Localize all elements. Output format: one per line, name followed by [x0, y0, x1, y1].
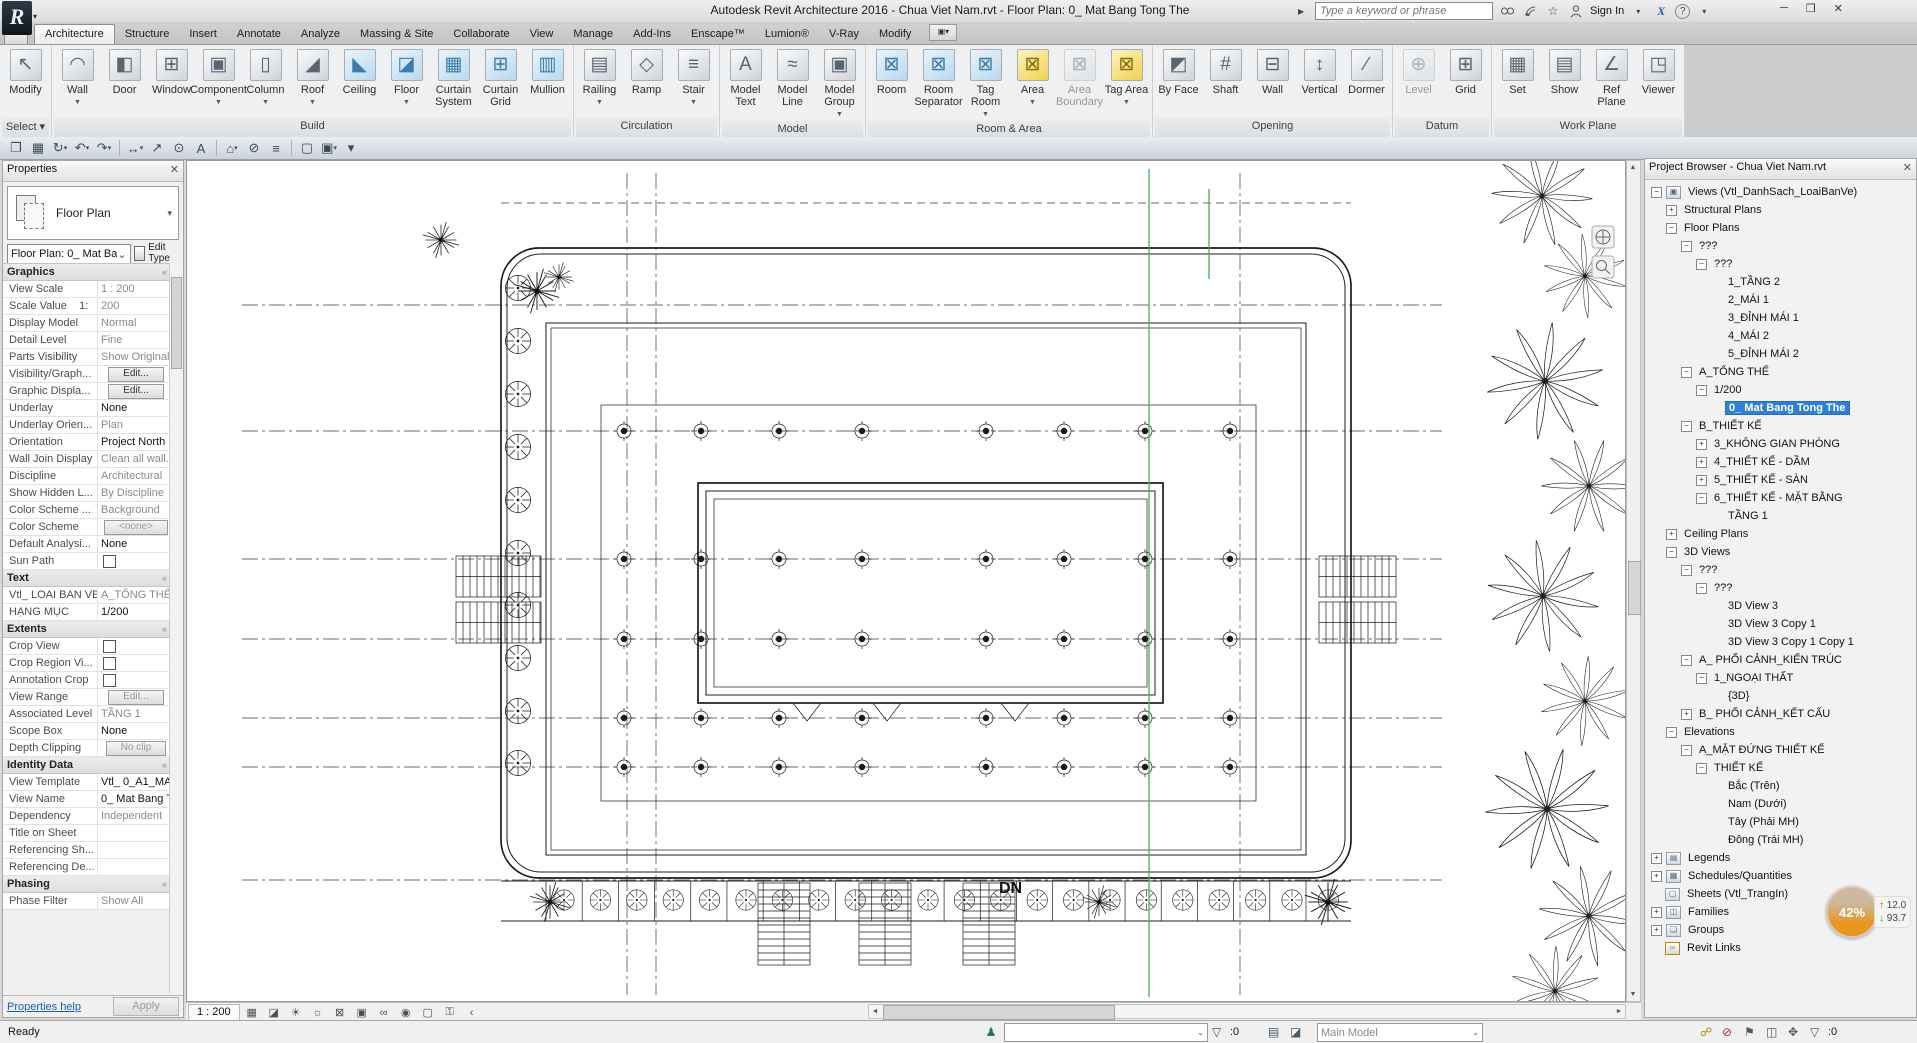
area-icon: ⊠	[1017, 49, 1049, 81]
collapse-icon[interactable]: −	[1681, 565, 1692, 576]
apply-button[interactable]: Apply	[113, 997, 179, 1016]
expand-icon[interactable]: +	[1651, 871, 1662, 882]
zoom-tool-icon[interactable]	[1592, 256, 1614, 278]
ribbon-group-label-select[interactable]: Select ▾	[2, 118, 49, 137]
restore-button[interactable]: ❐	[1806, 2, 1816, 22]
ribbon-button-room-separator[interactable]: ⊠Room Separator	[915, 46, 962, 117]
open-icon[interactable]: ❐	[6, 139, 26, 157]
select-links-icon[interactable]: ☍	[1700, 1025, 1718, 1039]
browser-item-thi-t-k[interactable]: −THIẾT KẾ	[1645, 759, 1916, 777]
ribbon-button-stair[interactable]: ≡Stair▼	[670, 46, 717, 117]
browser-item-label[interactable]: 5_ĐỈNH MÁI 2	[1725, 348, 1802, 360]
browser-item-5-thi-t-k-s-n[interactable]: +5_THIẾT KẾ - SÀN	[1645, 471, 1916, 489]
browser-item-label[interactable]: 1_TẦNG 2	[1725, 276, 1783, 288]
save-icon[interactable]: ▦	[28, 139, 48, 157]
tab-v-ray[interactable]: V-Ray	[819, 25, 869, 44]
browser-item-label[interactable]: 0_ Mat Bang Tong The	[1725, 401, 1850, 415]
dropdown-arrow-icon[interactable]: ▼	[596, 97, 603, 109]
application-menu-arrow-icon[interactable]: ▾	[33, 12, 37, 21]
undo-icon[interactable]: ↶ ▾	[72, 139, 92, 157]
ribbon-button-column[interactable]: ▯Column▼	[242, 46, 289, 117]
dropdown-arrow-icon[interactable]: ▼	[1029, 97, 1036, 109]
property-value[interactable]: 1/200	[101, 604, 129, 620]
browser-item-[interactable]: −???	[1645, 255, 1916, 273]
browser-item-b-ph-i-c-nh-k-t-c-u[interactable]: +B_ PHỐI CẢNH_KẾT CẤU	[1645, 705, 1916, 723]
browser-item-4-thi-t-k-d-m[interactable]: +4_THIẾT KẾ - DẦM	[1645, 453, 1916, 471]
drawing-area[interactable]: DN	[186, 160, 1626, 1002]
download-arrow-icon: ↓	[1879, 913, 1884, 924]
ribbon-button-area[interactable]: ⊠Area▼	[1009, 46, 1056, 117]
reveal-hidden-elements-icon[interactable]: ∞	[374, 1004, 394, 1021]
property-edit-button[interactable]: Edit...	[108, 367, 164, 382]
user-icon	[1567, 3, 1585, 19]
thin-lines-icon[interactable]: ≡	[266, 139, 286, 157]
trees[interactable]	[423, 222, 1351, 925]
collapse-icon[interactable]: −	[1696, 583, 1707, 594]
browser-item-elevations[interactable]: −Elevations	[1645, 723, 1916, 741]
collapse-icon[interactable]: −	[1696, 673, 1707, 684]
collapse-icon[interactable]: −	[1681, 745, 1692, 756]
show-icon: ▤	[1549, 49, 1581, 81]
browser-item-label[interactable]: 3D View 3 Copy 1	[1725, 618, 1819, 630]
ribbon-button-ramp[interactable]: ◇Ramp	[623, 46, 670, 117]
column-grid[interactable]	[614, 421, 1240, 777]
collapse-icon[interactable]: −	[1696, 259, 1707, 270]
browser-item-label[interactable]: Structural Plans	[1681, 204, 1765, 216]
tab-enscape[interactable]: Enscape™	[681, 25, 755, 44]
collapse-icon[interactable]: −	[1681, 655, 1692, 666]
design-option-select[interactable]: Main Model⌄	[1317, 1023, 1483, 1042]
property-checkbox[interactable]	[103, 657, 116, 670]
column-icon: ▯	[250, 49, 282, 81]
browser-item-label[interactable]: Groups	[1685, 924, 1727, 936]
ribbon-button-roof[interactable]: ◢Roof▼	[289, 46, 336, 117]
collapse-icon[interactable]: ‹	[462, 1004, 482, 1021]
show-crop-region-icon[interactable]: ▣	[352, 1004, 372, 1021]
selector-arrow-icon[interactable]: ⌄	[117, 248, 126, 261]
collapse-icon[interactable]: −	[1696, 385, 1707, 396]
browser-item-label[interactable]: 4_THIẾT KẾ - DẦM	[1711, 456, 1813, 468]
property-checkbox[interactable]	[103, 555, 116, 568]
infocenter: ▸ ☆ Sign In ▾ X ? ▾	[1292, 1, 1713, 21]
browser-item-label[interactable]: Ceiling Plans	[1681, 528, 1751, 540]
collapse-icon[interactable]: −	[1696, 493, 1707, 504]
section-header-phasing[interactable]: Phasing«	[3, 876, 171, 893]
ribbon-button-curtain-system[interactable]: ▦Curtain System	[430, 46, 477, 117]
browser-item-t-ng-1[interactable]: TẦNG 1	[1645, 507, 1916, 525]
dropdown-arrow-icon[interactable]: ▼	[262, 97, 269, 109]
minimize-button[interactable]: ─	[1780, 2, 1788, 22]
ribbon-button-door[interactable]: ◧Door	[101, 46, 148, 117]
sun-path-off-icon[interactable]: ☀	[286, 1004, 306, 1021]
area-boundary-icon: ⊠	[1064, 49, 1096, 81]
visual-style-icon[interactable]: ▦	[242, 1004, 262, 1021]
search-icon[interactable]	[1498, 3, 1516, 19]
sign-in-button[interactable]: Sign In	[1590, 5, 1624, 17]
dropdown-arrow-icon[interactable]: ▼	[982, 109, 989, 121]
browser-item-floor-plans[interactable]: −Floor Plans	[1645, 219, 1916, 237]
browser-item-b-c-tr-n[interactable]: Bắc (Trên)	[1645, 777, 1916, 795]
browser-item-label[interactable]: A_TỔNG THỂ	[1696, 366, 1772, 378]
browser-item-label[interactable]: Revit Links	[1684, 942, 1744, 954]
browser-item-label[interactable]: 1/200	[1711, 384, 1745, 396]
ribbon-button-show[interactable]: ▤Show	[1541, 46, 1588, 117]
ribbon-button-set[interactable]: ▦Set	[1494, 46, 1541, 117]
ribbon-button-room[interactable]: ⊠Room	[868, 46, 915, 117]
tab-view[interactable]: View	[520, 25, 564, 44]
selection-toggles: ☍⊘⚑◫✥▽	[1700, 1023, 1828, 1040]
browser-item-t-y-ph-i-mh[interactable]: Tây (Phải MH)	[1645, 813, 1916, 831]
browser-item-ng-tr-i-mh[interactable]: Đông (Trái MH)	[1645, 831, 1916, 849]
browser-item-3d-view-3-copy-1[interactable]: 3D View 3 Copy 1	[1645, 615, 1916, 633]
property-row-annotation-crop: Annotation Crop	[3, 672, 171, 689]
browser-item-1-200[interactable]: −1/200	[1645, 381, 1916, 399]
property-value[interactable]: 0_ Mat Bang To...	[101, 791, 171, 807]
horizontal-scrollbar[interactable]: ◄ ►	[868, 1004, 1626, 1019]
expand-icon[interactable]: +	[1666, 529, 1677, 540]
collapse-icon[interactable]: −	[1666, 547, 1677, 558]
speed-percent-badge[interactable]: 42%	[1826, 886, 1878, 938]
collapse-icon[interactable]: −	[1681, 241, 1692, 252]
browser-item-b-thi-t-k[interactable]: −B_THIẾT KẾ	[1645, 417, 1916, 435]
property-value[interactable]: Project North	[101, 434, 165, 450]
ribbon-button-grid[interactable]: ⊞Grid	[1442, 46, 1489, 117]
expand-icon[interactable]: +	[1651, 925, 1662, 936]
select-by-face-icon[interactable]: ◫	[1766, 1025, 1784, 1039]
browser-item-a-m-t-ng-thi-t-k[interactable]: −A_MẶT ĐỨNG THIẾT KẾ	[1645, 741, 1916, 759]
property-value[interactable]: Vtl_ 0_A1_MAT BA	[101, 774, 171, 790]
properties-palette: Properties ✕ Floor Plan ▾ Floor Plan: 0_…	[2, 160, 184, 1018]
browser-item-label[interactable]: 2_MÁI 1	[1725, 294, 1772, 306]
scroll-left-icon[interactable]: ◄	[869, 1005, 881, 1018]
property-value[interactable]: None	[101, 723, 127, 739]
ribbon-button-floor[interactable]: ◪Floor▼	[383, 46, 430, 117]
select-pinned-icon[interactable]: ⚑	[1744, 1025, 1762, 1039]
project-browser-close-icon[interactable]: ✕	[1903, 161, 1912, 179]
horizontal-scroll-thumb[interactable]	[883, 1005, 1115, 1020]
palm-plants[interactable]	[1475, 161, 1625, 1001]
section-icon[interactable]: ⊘	[244, 139, 264, 157]
browser-item-label[interactable]: 1_NGOẠI THẤT	[1711, 672, 1796, 684]
property-edit-button[interactable]: Edit...	[108, 690, 164, 705]
property-row-sun-path: Sun Path	[3, 553, 171, 570]
property-value[interactable]: None	[101, 400, 127, 416]
ribbon-button-viewer[interactable]: ◳Viewer	[1635, 46, 1682, 117]
section-header-identity-data[interactable]: Identity Data«	[3, 757, 171, 774]
ribbon-button-curtain-grid[interactable]: ⊞Curtain Grid	[477, 46, 524, 117]
browser-item-3d-view-3-copy-1-copy-1[interactable]: 3D View 3 Copy 1 Copy 1	[1645, 633, 1916, 651]
property-edit-button[interactable]: Edit...	[108, 384, 164, 399]
browser-item-label[interactable]: 5_THIẾT KẾ - SÀN	[1711, 474, 1811, 486]
search-input[interactable]	[1315, 2, 1493, 20]
dropdown-arrow-icon[interactable]: ▼	[403, 97, 410, 109]
close-hidden-windows-icon[interactable]: ▢	[297, 139, 317, 157]
temporary-hide-isolate-icon[interactable]: ◉	[396, 1004, 416, 1021]
ribbon-button-wall[interactable]: ⊟Wall	[1249, 46, 1296, 117]
links-icon: ∞	[1665, 942, 1680, 955]
modify-icon: ↖	[10, 49, 42, 81]
selection-filter-icon[interactable]: ▽	[1810, 1025, 1828, 1039]
mullion-icon: ▥	[532, 49, 564, 81]
ribbon-button-modify[interactable]: ↖Modify	[2, 46, 49, 117]
aligned-dimension-icon[interactable]: ↗	[147, 139, 167, 157]
help-arrow-icon[interactable]: ▾	[1695, 3, 1713, 19]
editable-only-filter[interactable]: ▽ :0	[1212, 1023, 1239, 1040]
ribbon-button-window[interactable]: ⊞Window	[148, 46, 195, 117]
ribbon-button-model-line[interactable]: ≈Model Line	[769, 46, 816, 117]
reveal-constraints-icon[interactable]: ⚿	[440, 1004, 460, 1021]
help-icon[interactable]: ?	[1675, 4, 1690, 19]
properties-scrollbar[interactable]	[169, 263, 182, 993]
default-3d-view-icon[interactable]: ⌂ ▾	[222, 139, 242, 157]
browser-item-[interactable]: −???	[1645, 579, 1916, 597]
close-button[interactable]: ✕	[1834, 2, 1843, 22]
browser-item-label[interactable]: Sheets (Vtl_TrangIn)	[1684, 888, 1791, 900]
browser-item-label[interactable]: Tây (Phải MH)	[1725, 816, 1802, 828]
browser-item-label[interactable]: A_ PHỐI CẢNH_KIẾN TRÚC	[1696, 654, 1845, 666]
browser-item-[interactable]: −???	[1645, 561, 1916, 579]
element-selector[interactable]: Floor Plan: 0_ Mat Ba ⌄	[7, 244, 131, 264]
browser-item-label[interactable]: A_MẶT ĐỨNG THIẾT KẾ	[1696, 744, 1828, 756]
browser-item-structural-plans[interactable]: +Structural Plans	[1645, 201, 1916, 219]
expand-icon[interactable]: +	[1651, 907, 1662, 918]
model-line-icon: ≈	[777, 49, 809, 81]
collapse-icon[interactable]: −	[1681, 421, 1692, 432]
browser-item-label[interactable]: ???	[1711, 582, 1735, 594]
browser-item-label[interactable]: 3_ĐỈNH MÁI 1	[1725, 312, 1802, 324]
redo-icon[interactable]: ↷ ▾	[94, 139, 114, 157]
tab-insert[interactable]: Insert	[179, 25, 227, 44]
browser-item-label[interactable]: ???	[1711, 258, 1735, 270]
communication-center-icon[interactable]	[1521, 3, 1539, 19]
quick-access-toolbar: ❐▦↻ ▾↶ ▾↷ ▾↔ ▾↗⊙A⌂ ▾⊘≡▢▣ ▾▾	[0, 137, 1917, 160]
collapse-icon[interactable]: −	[1696, 763, 1707, 774]
browser-item-revit-links[interactable]: ∞Revit Links	[1645, 939, 1916, 957]
browser-item-label[interactable]: TẦNG 1	[1725, 510, 1771, 522]
shadows-off-icon[interactable]: ☼	[308, 1004, 328, 1021]
ribbon-button-by-face[interactable]: ◩By Face	[1155, 46, 1202, 117]
dropdown-arrow-icon[interactable]: ▼	[1123, 97, 1130, 109]
browser-item-label[interactable]: Bắc (Trên)	[1725, 780, 1783, 792]
tab-massing-site[interactable]: Massing & Site	[350, 25, 443, 44]
browser-item-legends[interactable]: +▤Legends	[1645, 849, 1916, 867]
expand-icon[interactable]: +	[1696, 475, 1707, 486]
ribbon-button-vertical[interactable]: ↕Vertical	[1296, 46, 1343, 117]
crop-view-off-icon[interactable]: ⊠	[330, 1004, 350, 1021]
edit-type-button[interactable]: Edit Type	[134, 244, 179, 262]
browser-item-label[interactable]: THIẾT KẾ	[1711, 762, 1766, 774]
infocenter-collapse-icon[interactable]: ▸	[1292, 3, 1310, 19]
ribbon-button-tag-area[interactable]: ⊠Tag Area▼	[1103, 46, 1150, 117]
dropdown-arrow-icon[interactable]: ▼	[215, 97, 222, 109]
tab-modify[interactable]: Modify	[869, 25, 921, 44]
collapse-icon[interactable]: −	[1651, 187, 1662, 198]
properties-close-icon[interactable]: ✕	[170, 163, 179, 181]
customize-qat-icon[interactable]: ▾	[341, 139, 361, 157]
browser-item-nam-d-i[interactable]: Nam (Dưới)	[1645, 795, 1916, 813]
browser-item-a-ph-i-c-nh-ki-n-tr-c[interactable]: −A_ PHỐI CẢNH_KIẾN TRÚC	[1645, 651, 1916, 669]
scroll-down-icon[interactable]: ▼	[1627, 988, 1639, 1001]
tab-manage[interactable]: Manage	[563, 25, 623, 44]
scroll-right-icon[interactable]: ►	[1613, 1005, 1625, 1018]
expand-icon[interactable]: +	[1696, 457, 1707, 468]
browser-item-label[interactable]: 3D View 3 Copy 1 Copy 1	[1725, 636, 1857, 648]
property-checkbox[interactable]	[103, 640, 116, 653]
favorites-icon[interactable]: ☆	[1544, 3, 1562, 19]
worksets-dialog-icon[interactable]: ◪	[1290, 1025, 1308, 1039]
browser-item-1-t-ng-2[interactable]: 1_TẦNG 2	[1645, 273, 1916, 291]
browser-item-label[interactable]: Views (Vtl_DanhSach_LoaiBanVe)	[1685, 186, 1860, 198]
browser-item-a-t-ng-th[interactable]: −A_TỔNG THỂ	[1645, 363, 1916, 381]
floor-plan-drawing[interactable]: DN	[187, 161, 1625, 1001]
expand-icon[interactable]: +	[1651, 853, 1662, 864]
browser-item-label[interactable]: B_ PHỐI CẢNH_KẾT CẤU	[1696, 708, 1833, 720]
browser-item-label[interactable]: Nam (Dưới)	[1725, 798, 1790, 810]
floor-plan-type-icon	[16, 195, 46, 231]
browser-item-label[interactable]: 6_THIẾT KẾ - MẶT BẰNG	[1711, 492, 1846, 504]
dropdown-arrow-icon[interactable]: ▼	[836, 109, 843, 121]
tag-icon[interactable]: ⊙	[169, 139, 189, 157]
tab-architecture[interactable]: Architecture	[34, 24, 115, 44]
ribbon-button-wall[interactable]: ◠Wall▼	[54, 46, 101, 117]
expand-icon[interactable]: +	[1681, 709, 1692, 720]
editing-requests-icon[interactable]: ▤	[1268, 1025, 1286, 1039]
sign-in-arrow-icon[interactable]: ▾	[1629, 3, 1647, 19]
ribbon-button-model-group[interactable]: ▣Model Group▼	[816, 46, 863, 121]
dropdown-arrow-icon[interactable]: ▼	[74, 97, 81, 109]
browser-item-label[interactable]: 3D Views	[1681, 546, 1733, 558]
browser-item-label[interactable]: ???	[1696, 564, 1720, 576]
ribbon-group-label-work-plane: Work Plane	[1494, 118, 1682, 137]
navigation-wheel-icon[interactable]	[1592, 226, 1614, 248]
property-checkbox[interactable]	[103, 674, 116, 687]
select-underlay-icon[interactable]: ⊘	[1722, 1025, 1740, 1039]
expand-icon[interactable]: +	[1696, 439, 1707, 450]
property-label: View Template	[3, 774, 98, 790]
tab-collaborate[interactable]: Collaborate	[443, 25, 519, 44]
browser-item-5-nh-m-i-2[interactable]: 5_ĐỈNH MÁI 2	[1645, 345, 1916, 363]
section-header-graphics[interactable]: Graphics«	[3, 264, 171, 281]
browser-item-label[interactable]: Elevations	[1681, 726, 1738, 738]
browser-item-label[interactable]: Schedules/Quantities	[1685, 870, 1795, 882]
browser-item-label[interactable]: B_THIẾT KẾ	[1696, 420, 1765, 432]
browser-item-1-ngo-i-th-t[interactable]: −1_NGOẠI THẤT	[1645, 669, 1916, 687]
courtyard-boundary[interactable]	[546, 323, 1306, 855]
network-speed-overlay[interactable]: 42% ↑ 12.0 ↓ 93.7	[1826, 884, 1917, 940]
type-selector-arrow-icon[interactable]: ▾	[167, 208, 178, 219]
browser-item-views-vtl-danhsach-loaibanve[interactable]: −▣Views (Vtl_DanhSach_LoaiBanVe)	[1645, 183, 1916, 201]
property-edit-button[interactable]: No clip	[106, 741, 167, 756]
property-value[interactable]: None	[101, 536, 127, 552]
browser-item-label[interactable]: Families	[1685, 906, 1732, 918]
section-header-extents[interactable]: Extents«	[3, 621, 171, 638]
workset-select[interactable]: ⌄	[1004, 1023, 1208, 1042]
collapse-icon[interactable]: −	[1666, 223, 1677, 234]
browser-item-label[interactable]: Legends	[1685, 852, 1733, 864]
browser-item-[interactable]: −???	[1645, 237, 1916, 255]
browser-item-3-kh-ng-gian-ph-ng[interactable]: +3_KHÔNG GIAN PHÒNG	[1645, 435, 1916, 453]
browser-item-label[interactable]: Floor Plans	[1681, 222, 1743, 234]
dropdown-arrow-icon[interactable]: ▼	[309, 97, 316, 109]
active-workset-icon: ♟	[982, 1023, 1000, 1040]
tab-analyze[interactable]: Analyze	[291, 25, 350, 44]
collapse-icon[interactable]: −	[1681, 367, 1692, 378]
property-value: Architectural	[101, 468, 162, 484]
view-scale-button[interactable]: 1 : 200	[188, 1004, 240, 1021]
expand-icon[interactable]: +	[1666, 205, 1677, 216]
browser-item-label[interactable]: Đông (Trái MH)	[1725, 834, 1806, 846]
tab-annotate[interactable]: Annotate	[227, 25, 291, 44]
detail-level-icon[interactable]: ◪	[264, 1004, 284, 1021]
type-selector[interactable]: Floor Plan ▾	[7, 186, 179, 240]
tab-add-ins[interactable]: Add-Ins	[623, 25, 681, 44]
properties-table: Graphics«View Scale1 : 200Scale Value 1:…	[3, 263, 171, 993]
dropdown-arrow-icon[interactable]: ▼	[690, 97, 697, 109]
ribbon-button-ceiling[interactable]: ◣Ceiling	[336, 46, 383, 117]
ribbon-button-dormer[interactable]: ∕Dormer	[1343, 46, 1390, 117]
text-icon[interactable]: A	[191, 139, 211, 157]
vertical-scroll-thumb[interactable]	[1628, 561, 1641, 615]
sync-icon[interactable]: ↻ ▾	[50, 139, 70, 157]
switch-windows-icon[interactable]: ▣ ▾	[319, 139, 339, 157]
outer-boundary-wall[interactable]	[501, 248, 1351, 878]
browser-item-label[interactable]: 3D View 3	[1725, 600, 1781, 612]
scroll-up-icon[interactable]: ▲	[1627, 161, 1639, 174]
measure-icon[interactable]: ↔ ▾	[125, 139, 145, 157]
browser-item-3-nh-m-i-1[interactable]: 3_ĐỈNH MÁI 1	[1645, 309, 1916, 327]
ribbon-button-mullion[interactable]: ▥Mullion	[524, 46, 571, 117]
property-edit-button[interactable]: <none>	[104, 520, 168, 535]
ribbon-button-tag-room[interactable]: ⊠Tag Room▼	[962, 46, 1009, 121]
worksharing-display-icon[interactable]: ▢	[418, 1004, 438, 1021]
property-label: Parts Visibility	[3, 349, 98, 365]
section-header-text[interactable]: Text«	[3, 570, 171, 587]
browser-item-4-m-i-2[interactable]: 4_MÁI 2	[1645, 327, 1916, 345]
drag-on-selection-icon[interactable]: ✥	[1788, 1025, 1806, 1039]
browser-item-3d-views[interactable]: −3D Views	[1645, 543, 1916, 561]
browser-item-3d-view-3[interactable]: 3D View 3	[1645, 597, 1916, 615]
browser-item-3d[interactable]: {3D}	[1645, 687, 1916, 705]
properties-help-link[interactable]: Properties help	[7, 1001, 81, 1013]
browser-item-label[interactable]: 4_MÁI 2	[1725, 330, 1772, 342]
ribbon-button-component[interactable]: ▣Component▼	[195, 46, 242, 117]
exchange-apps-icon[interactable]: X	[1652, 3, 1670, 19]
tab-structure[interactable]: Structure	[115, 25, 180, 44]
tab-lumion[interactable]: Lumion®	[755, 25, 819, 44]
planter-cells	[546, 881, 1306, 921]
ribbon-button-shaft[interactable]: #Shaft	[1202, 46, 1249, 117]
property-label: Scale Value 1:	[3, 298, 98, 314]
browser-item-6-thi-t-k-m-t-b-ng[interactable]: −6_THIẾT KẾ - MẶT BẰNG	[1645, 489, 1916, 507]
browser-item-0-mat-bang-tong-the[interactable]: 0_ Mat Bang Tong The	[1645, 399, 1916, 417]
browser-item-label[interactable]: {3D}	[1725, 690, 1752, 702]
browser-item-label[interactable]: ???	[1696, 240, 1720, 252]
ribbon-button-model-text[interactable]: AModel Text	[722, 46, 769, 117]
main-hall-wall[interactable]	[698, 483, 1163, 703]
application-menu-button[interactable]: R	[2, 1, 32, 35]
property-label: Vtl_ LOAI BAN VE	[3, 587, 98, 603]
browser-item-label[interactable]: 3_KHÔNG GIAN PHÒNG	[1711, 438, 1843, 450]
ribbon-button-railing[interactable]: ▤Railing▼	[576, 46, 623, 117]
project-browser-title: Project Browser - Chua Viet Nam.rvt	[1649, 161, 1826, 179]
ribbon-button-ref-plane[interactable]: ∠Ref Plane	[1588, 46, 1635, 117]
vertical-scrollbar[interactable]: ▲ ▼	[1626, 160, 1641, 1002]
ribbon-display-toggle-button[interactable]: ▣▾	[929, 24, 957, 41]
collapse-icon[interactable]: −	[1666, 727, 1677, 738]
browser-item-schedules-quantities[interactable]: +▦Schedules/Quantities	[1645, 867, 1916, 885]
browser-item-ceiling-plans[interactable]: +Ceiling Plans	[1645, 525, 1916, 543]
browser-item-2-m-i-1[interactable]: 2_MÁI 1	[1645, 291, 1916, 309]
